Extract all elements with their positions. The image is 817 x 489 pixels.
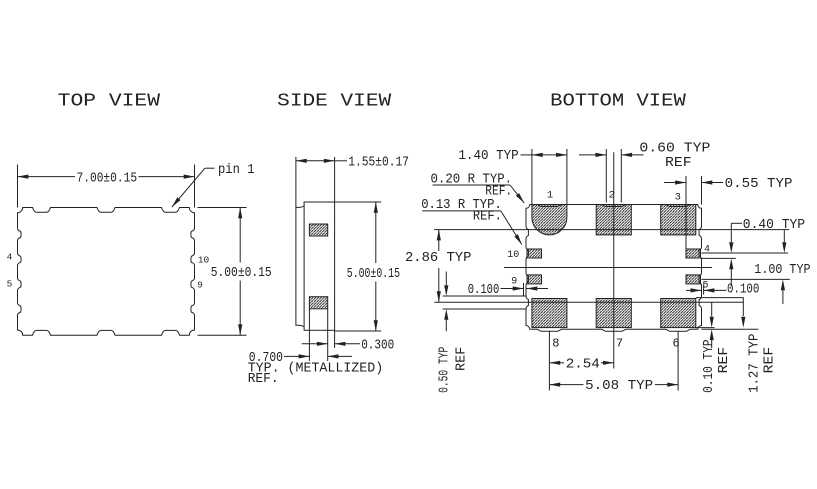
svg-text:TOP VIEW: TOP VIEW [58, 92, 161, 112]
svg-text:7.00±0.15: 7.00±0.15 [77, 171, 138, 186]
svg-text:8: 8 [552, 336, 559, 350]
svg-text:10: 10 [507, 250, 519, 261]
svg-text:3: 3 [675, 191, 681, 203]
svg-text:0.50 TYP: 0.50 TYP [438, 347, 453, 393]
svg-text:0.10 TYP: 0.10 TYP [702, 339, 717, 393]
svg-text:0.40 TYP: 0.40 TYP [743, 218, 805, 233]
svg-text:0.55 TYP: 0.55 TYP [725, 177, 793, 192]
svg-text:REF.: REF. [473, 210, 502, 225]
svg-text:REF: REF [762, 347, 777, 374]
svg-text:2.86 TYP: 2.86 TYP [405, 251, 471, 266]
svg-text:REF.: REF. [248, 372, 279, 387]
svg-text:0.60 TYP: 0.60 TYP [639, 142, 710, 157]
svg-text:REF: REF [455, 347, 470, 371]
svg-text:0.100: 0.100 [727, 283, 759, 298]
svg-text:5: 5 [7, 278, 13, 289]
svg-text:6: 6 [672, 336, 679, 350]
svg-text:1.27 TYP: 1.27 TYP [748, 334, 763, 393]
svg-text:0.100: 0.100 [468, 283, 500, 298]
svg-text:5.08 TYP: 5.08 TYP [585, 379, 653, 394]
svg-text:5.00±0.15: 5.00±0.15 [211, 266, 272, 281]
svg-text:4: 4 [7, 252, 13, 263]
svg-text:1.55±0.17: 1.55±0.17 [348, 156, 409, 171]
svg-text:2.54: 2.54 [566, 357, 600, 372]
svg-text:1.40 TYP: 1.40 TYP [458, 149, 518, 164]
svg-text:5.00±0.15: 5.00±0.15 [347, 267, 400, 282]
svg-text:2: 2 [609, 189, 615, 201]
svg-text:1.00 TYP: 1.00 TYP [754, 263, 810, 278]
svg-text:0.300: 0.300 [361, 338, 394, 353]
svg-text:9: 9 [197, 280, 203, 291]
svg-text:pin 1: pin 1 [218, 163, 255, 178]
svg-text:9: 9 [511, 277, 517, 288]
svg-text:4: 4 [704, 244, 710, 255]
svg-text:REF: REF [665, 156, 692, 171]
svg-text:BOTTOM VIEW: BOTTOM VIEW [550, 91, 686, 111]
svg-text:1: 1 [547, 189, 553, 201]
svg-text:REF: REF [717, 347, 732, 374]
svg-text:7: 7 [616, 336, 623, 350]
svg-text:SIDE VIEW: SIDE VIEW [277, 92, 391, 112]
svg-text:5: 5 [702, 280, 708, 291]
svg-text:10: 10 [198, 255, 210, 266]
